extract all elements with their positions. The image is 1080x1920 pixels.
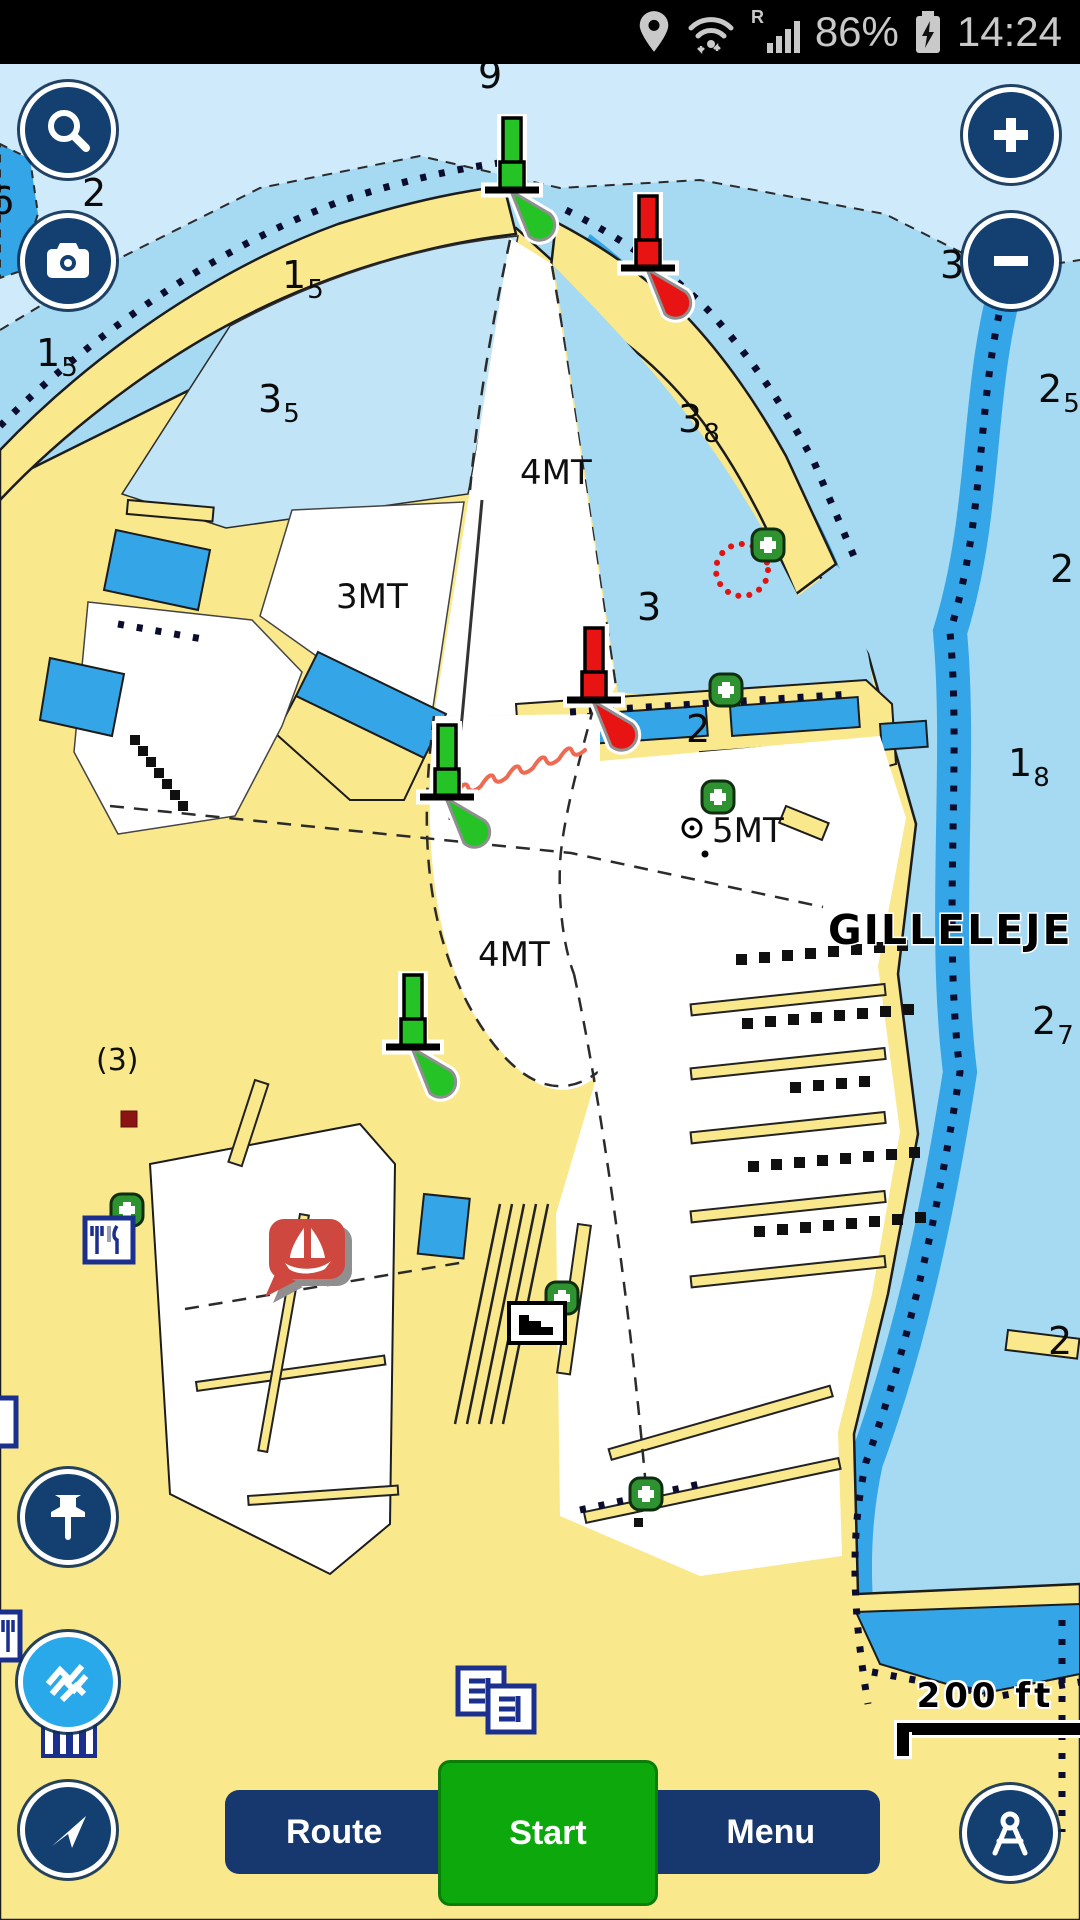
depth-sounding: 6 bbox=[0, 179, 14, 223]
annotation-3: (3) bbox=[96, 1043, 139, 1078]
route-button[interactable]: Route bbox=[225, 1790, 443, 1874]
community-plus-marker[interactable] bbox=[702, 781, 734, 813]
depth-sounding: 2 bbox=[1050, 547, 1074, 591]
depth-sounding: 2 bbox=[1048, 1319, 1072, 1363]
slipway-icon[interactable] bbox=[509, 1303, 565, 1343]
menu-button[interactable]: Menu bbox=[662, 1790, 880, 1874]
navionics-waves-icon bbox=[38, 1652, 98, 1712]
follow-me-button[interactable] bbox=[20, 1782, 116, 1878]
status-bar: R 86% 14:24 bbox=[0, 0, 1080, 64]
pile-mark bbox=[634, 1518, 643, 1527]
place-label: GILLELEJE bbox=[828, 906, 1073, 954]
zoom-out-button[interactable] bbox=[963, 213, 1059, 309]
depth-area-label: 5MT bbox=[712, 811, 784, 851]
depth-sounding: 3 bbox=[940, 243, 964, 287]
search-button[interactable] bbox=[20, 82, 116, 178]
signal-icon: R bbox=[751, 9, 801, 55]
sonar-charts-button[interactable] bbox=[18, 1632, 118, 1732]
scale-label: 200 ft bbox=[894, 1676, 1077, 1716]
roaming-badge: R bbox=[751, 9, 764, 27]
zoom-in-button[interactable] bbox=[963, 87, 1059, 183]
clock: 14:24 bbox=[957, 11, 1062, 53]
battery-percent: 86% bbox=[815, 11, 899, 53]
slip-dock-water bbox=[418, 1194, 470, 1258]
navigation-arrow-icon bbox=[40, 1802, 96, 1858]
depth-sounding: 2 bbox=[82, 171, 106, 215]
drop-pin-button[interactable] bbox=[20, 1469, 116, 1565]
distance-tool-button[interactable] bbox=[962, 1785, 1058, 1881]
divider-compass-icon bbox=[981, 1804, 1039, 1862]
scale-line bbox=[894, 1720, 1080, 1738]
partial-chart-icon bbox=[0, 1398, 16, 1446]
map-scale: 200 ft bbox=[894, 1676, 1080, 1738]
plus-icon bbox=[983, 107, 1039, 163]
depth-area-label: 4MT bbox=[520, 453, 592, 493]
depth-sounding: 2 bbox=[686, 707, 710, 751]
camera-button[interactable] bbox=[20, 213, 116, 309]
restaurant-icon[interactable] bbox=[85, 1218, 133, 1262]
wifi-icon bbox=[685, 10, 737, 54]
community-plus-marker[interactable] bbox=[752, 529, 784, 561]
dredged-strip bbox=[880, 721, 928, 750]
depth-area-label: 4MT bbox=[478, 935, 550, 975]
nautical-chart[interactable]: (3) bbox=[0, 64, 1080, 1920]
battery-icon bbox=[913, 9, 943, 55]
minus-icon bbox=[983, 233, 1039, 289]
camera-icon bbox=[40, 233, 96, 289]
red-square-mark bbox=[121, 1111, 137, 1127]
community-plus-marker[interactable] bbox=[710, 674, 742, 706]
partial-restaurant-icon bbox=[0, 1612, 20, 1660]
search-icon bbox=[40, 102, 96, 158]
depth-sounding: 3 bbox=[637, 585, 661, 629]
start-button[interactable]: Start bbox=[438, 1760, 658, 1906]
depth-sounding: 9 bbox=[478, 64, 502, 97]
location-icon bbox=[637, 10, 671, 54]
community-plus-marker[interactable] bbox=[630, 1478, 662, 1510]
app-screen: R 86% 14:24 bbox=[0, 0, 1080, 1920]
pushpin-icon bbox=[39, 1488, 97, 1546]
depth-area-label: 3MT bbox=[336, 577, 408, 617]
